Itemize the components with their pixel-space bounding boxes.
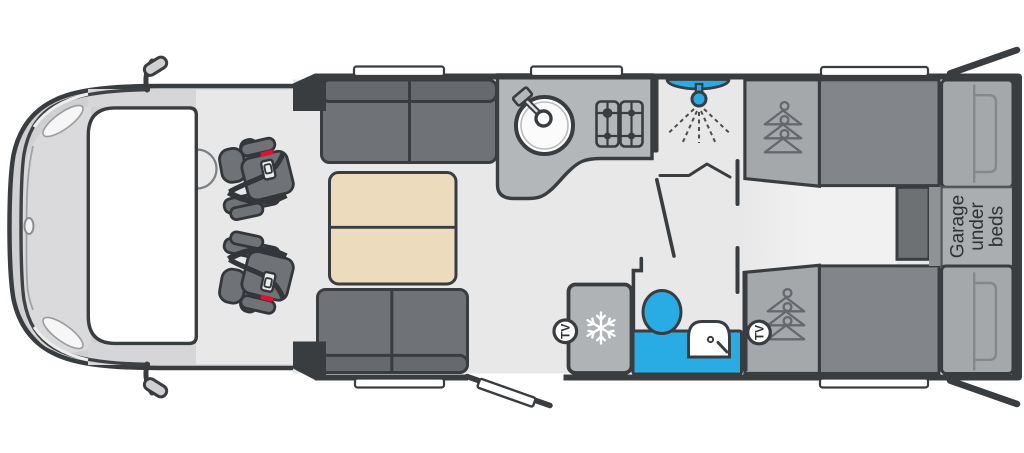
svg-text:TV: TV [752,325,766,340]
svg-text:under: under [967,202,988,251]
svg-text:Garage: Garage [948,195,969,258]
svg-text:TV: TV [559,324,573,339]
svg-text:beds: beds [987,206,1008,247]
